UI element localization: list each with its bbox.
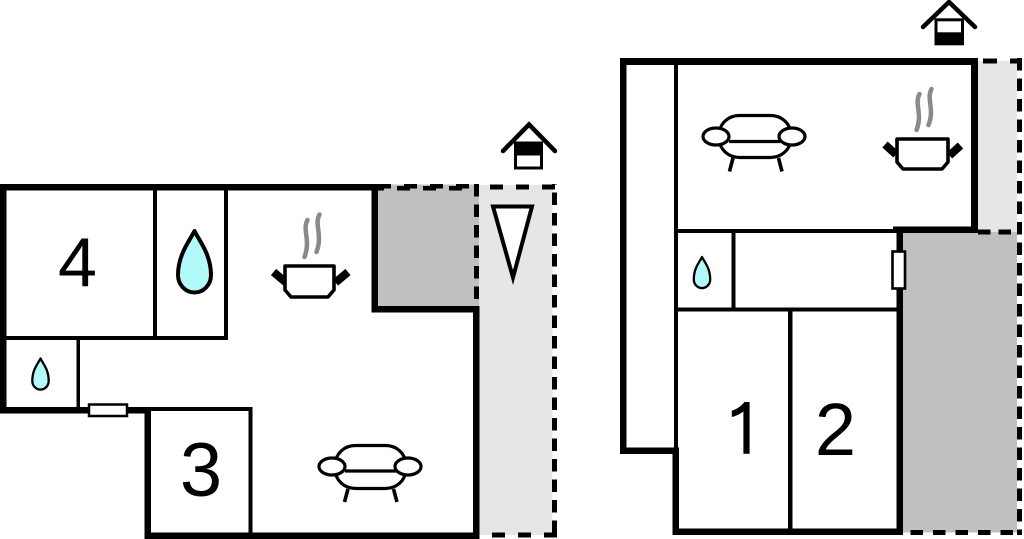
svg-text:3: 3	[180, 428, 222, 513]
svg-text:4: 4	[58, 224, 97, 302]
svg-text:2: 2	[815, 388, 856, 471]
